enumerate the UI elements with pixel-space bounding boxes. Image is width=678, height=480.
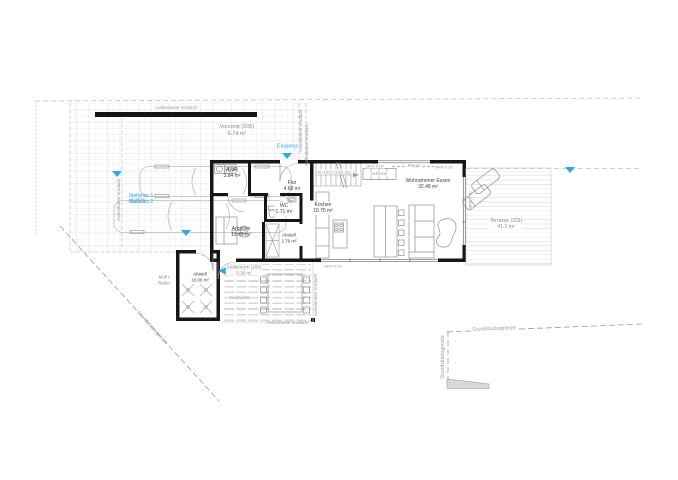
aussenkante-vordach-label-top: Außenkante Vordach bbox=[155, 105, 197, 111]
vorzone-label: Vorzone (205) 6.74 m² bbox=[220, 124, 255, 138]
stairs-icon bbox=[314, 162, 363, 188]
vorzone-name: Vorzone (205) bbox=[220, 124, 255, 131]
entrance-marker-icon bbox=[282, 153, 292, 159]
abstell-area: 2.79 m² bbox=[281, 238, 296, 244]
car-icon bbox=[140, 165, 291, 198]
floorplan-linework bbox=[0, 0, 678, 480]
suedbereich-area: 5.36 m² bbox=[227, 270, 262, 276]
brh-000-label-right: BRH 0.00 bbox=[468, 191, 473, 208]
kiesboden-label: Kiesboden bbox=[228, 295, 251, 301]
riegel-label: Riegel bbox=[407, 163, 422, 169]
storage-shelf-icon bbox=[266, 224, 279, 257]
room-label-wohnzimmer: Wohnzimmer Essen 32.48 m² bbox=[406, 178, 451, 191]
arbeiten-area: 13.49 m² bbox=[231, 232, 251, 238]
grundstuecksgrenze-label-vertical: Grundstücksgrenze bbox=[440, 335, 446, 378]
wc-area: 1.71 m² bbox=[276, 209, 293, 215]
plants-icon bbox=[182, 284, 212, 313]
muell-raeder-label: Müll / Räder bbox=[158, 274, 170, 285]
carport-marker-icon bbox=[112, 171, 122, 177]
stellplatz-2: Stellplatz 2 bbox=[129, 199, 153, 205]
stellplatz-label: Stellplatz 1 Stellplatz 2 bbox=[129, 193, 153, 206]
wohnzimmer-area: 32.48 m² bbox=[406, 184, 451, 190]
terrasse-label: Terrasse (229) 41.1 m² bbox=[489, 218, 523, 231]
outdoor-table-icon bbox=[261, 274, 310, 313]
suedbereich-name: Südbereich (205) bbox=[227, 264, 262, 270]
abstell-name: Abstell bbox=[281, 232, 296, 238]
aussenkante-vordach-label-bottom: Außenkante Vordach bbox=[266, 320, 308, 326]
abstell-garten-area: 10.00 m² bbox=[191, 277, 209, 283]
room-label-flur: Flur 4.68 m² bbox=[284, 180, 301, 193]
muell-line2: Räder bbox=[158, 280, 170, 286]
room-label-awr: AWR 3.84 m² bbox=[224, 167, 241, 180]
room-label-abstell: Abstell 2.79 m² bbox=[280, 232, 297, 243]
terrace-marker-icon bbox=[565, 167, 575, 173]
brh-035-label: BRH 0.35 bbox=[434, 164, 453, 169]
schrank-label: Schrank bbox=[370, 171, 389, 177]
dining-table-icon bbox=[374, 206, 404, 257]
abstell-garten-name: Abstell bbox=[191, 271, 209, 277]
aussenkante-vordach-label-left: Außenkante Vordach bbox=[116, 179, 122, 221]
aussenkante-vordach-label-entry-1: Außenkante Vordach bbox=[298, 110, 304, 152]
brh-000-label-bottom: BRH 0.00 bbox=[324, 264, 341, 269]
suedbereich-label: Südbereich (205) 5.36 m² bbox=[226, 264, 263, 275]
awr-area: 3.84 m² bbox=[224, 173, 241, 179]
carport-roof-edge-bar bbox=[95, 112, 257, 117]
carport-roof-edges bbox=[70, 103, 306, 252]
flur-area: 4.68 m² bbox=[284, 186, 301, 192]
terrasse-area: 41.1 m² bbox=[490, 224, 522, 230]
muell-line1: Müll / bbox=[158, 274, 170, 280]
eingang-label: Eingang bbox=[277, 144, 297, 151]
room-label-arbeiten: Arbeiten 13.49 m² bbox=[231, 226, 251, 239]
aussenkante-vordach-label-entry-2: Außenkante Vordach bbox=[304, 124, 310, 166]
aussenkante-vordach-label-south: Außenkante Vordach bbox=[313, 274, 319, 316]
kochen-area: 10.75 m² bbox=[313, 208, 333, 214]
room-label-wc: WC 1.71 m² bbox=[275, 203, 294, 216]
carport-marker-icon bbox=[181, 230, 191, 236]
retaining-wall-shape bbox=[447, 379, 489, 389]
armchair-icon bbox=[437, 219, 456, 247]
sofa-icon bbox=[409, 205, 434, 258]
room-label-kochen: Kochen 10.75 m² bbox=[312, 202, 334, 215]
brh-090-label: BRH 0.90 bbox=[365, 164, 384, 169]
floor-plan-page: Außenkante Vordach Außenkante Vordach Au… bbox=[0, 0, 678, 480]
room-label-abstell-garten: Abstell 10.00 m² bbox=[190, 271, 210, 282]
vorzone-area: 6.74 m² bbox=[220, 131, 255, 138]
stair-note-label: Au 18x17,5/29 Stg bbox=[317, 170, 352, 175]
